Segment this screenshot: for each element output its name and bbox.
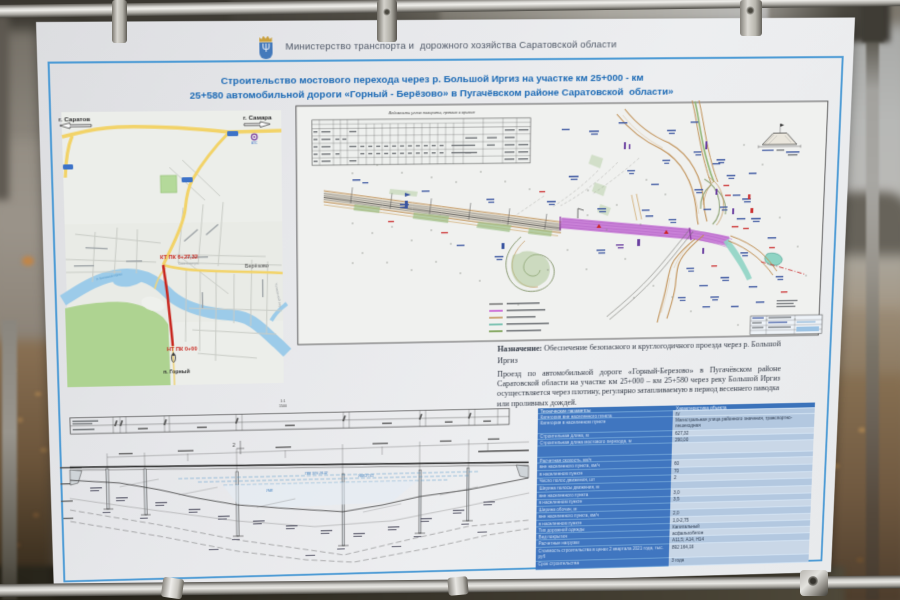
svg-text:г. Самара: г. Самара (243, 115, 272, 122)
svg-text:1500: 1500 (279, 404, 287, 408)
svg-text:АЗС: АЗС (251, 141, 258, 145)
svg-text:Советская ул.: Советская ул. (178, 262, 199, 266)
svg-text:г. Саратов: г. Саратов (58, 117, 90, 124)
svg-text:КТ ПК 6+27,32: КТ ПК 6+27,32 (160, 255, 199, 261)
svg-text:Ведомость углов поворота, прям: Ведомость углов поворота, прямых и кривы… (389, 110, 476, 116)
svg-text:УМВ: УМВ (266, 489, 272, 493)
svg-text:2: 2 (233, 443, 236, 449)
svg-text:НТ ПК 0+00: НТ ПК 0+00 (167, 347, 197, 353)
svg-text:УВВ 27.51: УВВ 27.51 (358, 474, 374, 478)
svg-text:п. Горный: п. Горный (163, 368, 190, 375)
svg-text:1:1: 1:1 (280, 399, 285, 403)
svg-text:Берёзово: Берёзово (245, 264, 269, 270)
svg-text:ГВВ 10% 28.32: ГВВ 10% 28.32 (305, 471, 328, 475)
